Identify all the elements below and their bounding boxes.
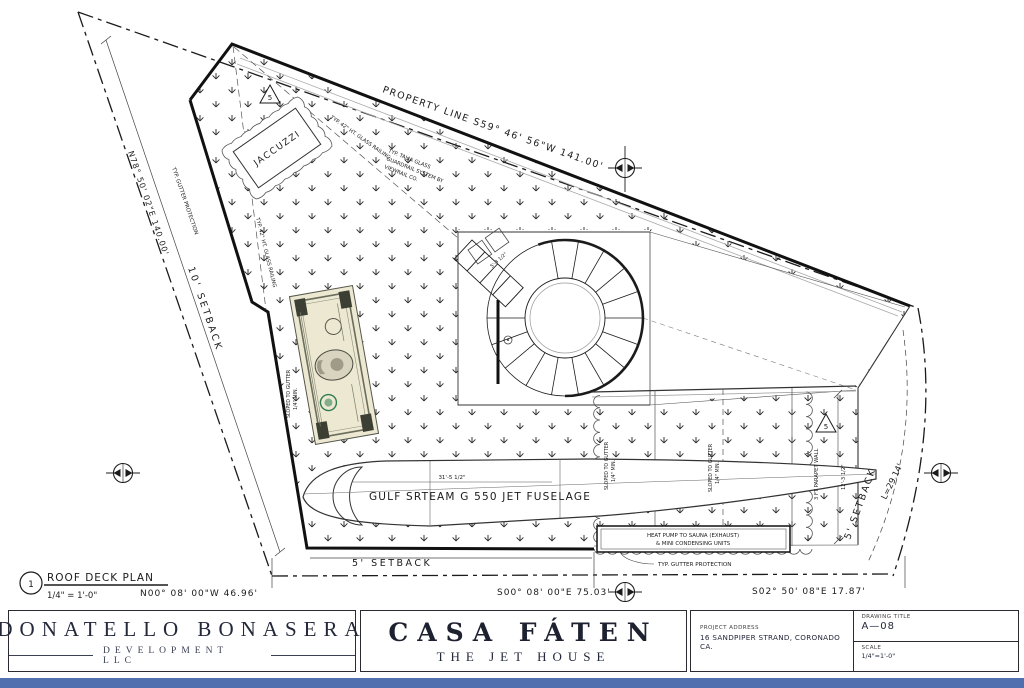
gutter-protection-bottom-note: TYP. GUTTER PROTECTION <box>657 562 731 568</box>
property-line-left-bearing: N78° 50' 02"E 140.00' <box>126 150 170 257</box>
project-block: CASA FÁTEN THE JET HOUSE <box>360 610 687 672</box>
sloped-note-roof1-2: 1/4" MIN. <box>611 460 617 482</box>
fuselage-label: GULF SRTEAM G 550 JET FUSELAGE <box>369 491 591 503</box>
title-block: DONATELLO BONASERA DEVELOPMENT LLC CASA … <box>0 609 1024 675</box>
project-name: CASA FÁTEN <box>388 618 658 647</box>
bottom-bar <box>0 678 1024 688</box>
heat-pump-unit: HEAT PUMP TO SAUNA (EXHAUST) & MINI COND… <box>597 526 790 564</box>
parapet-dim: 12'-3 1/2" <box>841 464 847 490</box>
view-title: ROOF DECK PLAN <box>47 572 154 584</box>
sloped-note-left-2: 1/4" MIN. <box>293 388 299 410</box>
bearing-bottom-right: S02° 50' 08"E 17.87' <box>752 587 866 597</box>
sloped-note-roof2-2: 1/4" MIN. <box>715 462 721 484</box>
sloped-note-roof1-1: SLOPED TO GUTTER <box>604 441 610 490</box>
developer-subtitle: DEVELOPMENT LLC <box>103 646 261 666</box>
drawing-sheet: JACCUZZI 5 5 31'-5 1/2" GULF SRT <box>0 0 1024 688</box>
bearing-bottom-center: S00° 08' 00"E 75.03' <box>497 588 611 598</box>
setback-bottom-label: 5' SETBACK <box>352 558 432 569</box>
drawing-number: A—08 <box>861 621 1018 632</box>
sloped-note-left-1: SLOPED TO GUTTER <box>286 369 292 418</box>
rule-right <box>271 655 355 656</box>
gutter-protection-left-note: TYP. GUTTER PROTECTION <box>170 166 199 236</box>
view-number: 1 <box>28 580 34 590</box>
roof-deck-plan-drawing: JACCUZZI 5 5 31'-5 1/2" GULF SRT <box>0 0 1024 608</box>
project-address-cell: PROJECT ADDRESS 16 SANDPIPER STRAND, COR… <box>691 611 854 671</box>
address-label: PROJECT ADDRESS <box>700 625 853 631</box>
sloped-note-roof2-1: SLOPED TO GUTTER <box>708 443 714 492</box>
developer-name: DONATELLO BONASERA <box>0 617 367 642</box>
address-value: 16 SANDPIPER STRAND, CORONADO CA. <box>700 633 853 651</box>
scale-cell: SCALE 1/4"=1'-0" <box>854 641 1018 672</box>
heat-pump-note-2: & MINI CONDENSING UNITS <box>656 541 731 547</box>
drawing-title-cell: DRAWING TITLE A—08 <box>854 611 1018 641</box>
parapet-wall-note: 3 FT PARAPET WALL <box>814 449 820 500</box>
heat-pump-note-1: HEAT PUMP TO SAUNA (EXHAUST) <box>647 533 739 539</box>
keynote-label: 5 <box>824 423 828 431</box>
rule-left <box>9 655 93 656</box>
info-block: PROJECT ADDRESS 16 SANDPIPER STRAND, COR… <box>690 610 1019 672</box>
project-subtitle: THE JET HOUSE <box>437 649 611 665</box>
scale-value: 1/4"=1'-0" <box>861 652 1018 660</box>
view-scale: 1/4" = 1'-0" <box>47 591 97 601</box>
developer-block: DONATELLO BONASERA DEVELOPMENT LLC <box>8 610 356 672</box>
drawing-title-label: DRAWING TITLE <box>861 614 1018 620</box>
keynote-label: 5 <box>268 94 272 102</box>
curve-length-label: L=29.14' <box>880 462 906 501</box>
bearing-bottom-left: N00° 08' 00"W 46.96' <box>140 589 258 599</box>
scale-label: SCALE <box>861 645 1018 651</box>
setback-left-label: 10' SETBACK <box>185 265 224 353</box>
fuselage-length-dim: 31'-5 1/2" <box>438 475 465 481</box>
